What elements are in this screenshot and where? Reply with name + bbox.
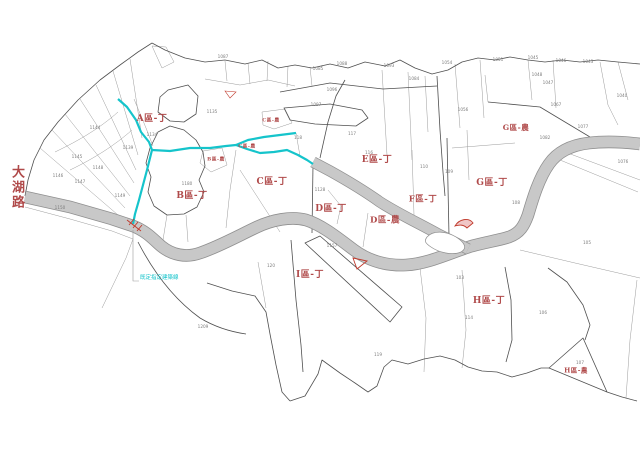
red-triangle-mark-b [225,91,236,98]
red-marks-layer [127,91,473,269]
leader-line-layer [133,230,139,281]
road-island [425,232,464,254]
cadastral-map: 大湖路 既定指定建築線 A區-丁B區-丁C區-丁D區-丁D區-農E區-丁F區-丁… [0,0,640,452]
red-mark-road-loop [455,219,473,228]
streams-layer [118,99,313,224]
cadastral-map-svg [0,0,640,452]
